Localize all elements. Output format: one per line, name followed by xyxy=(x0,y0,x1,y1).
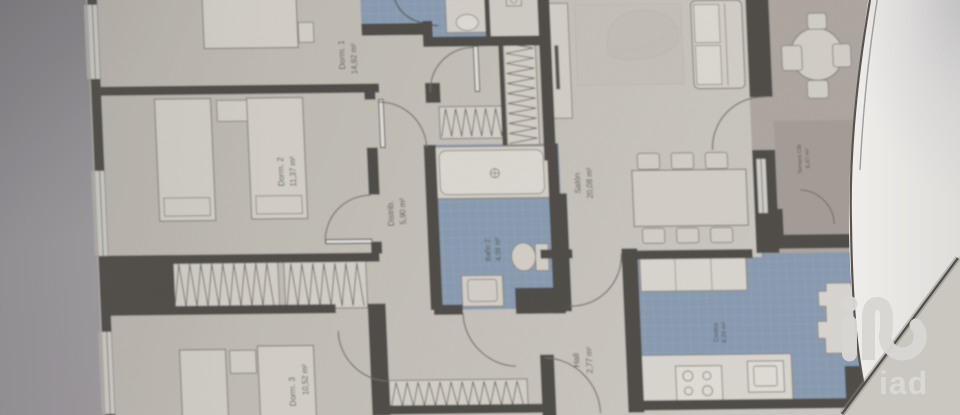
svg-text:iad: iad xyxy=(879,365,928,401)
